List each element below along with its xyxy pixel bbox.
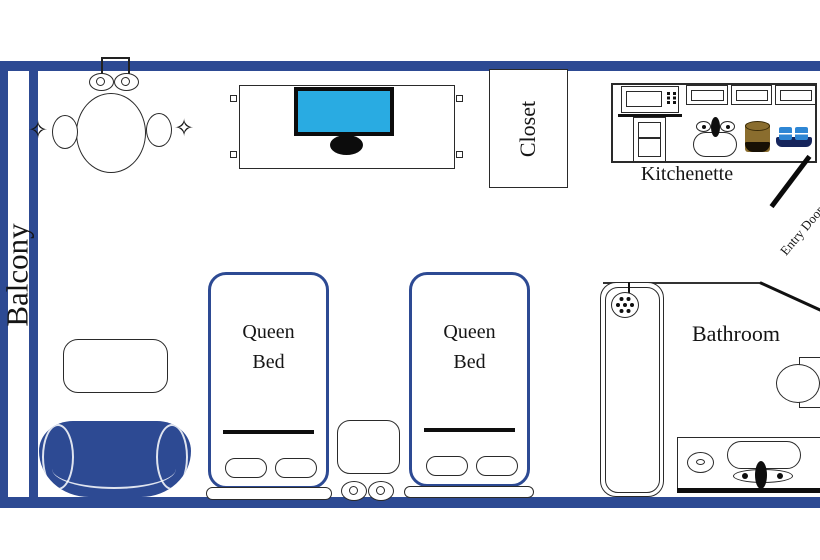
console-knob [456,95,463,102]
cabinet [775,85,816,105]
fridge-icon [633,117,666,162]
console-knob [230,151,237,158]
vanity-front-bar [677,488,820,493]
pillow [476,456,518,476]
cabinet [686,85,728,105]
tv-stand [330,135,363,155]
bed-2-label-line1: Queen [412,317,527,347]
microwave-icon [621,86,679,113]
bed-1-label-line1: Queen [211,317,326,347]
pendant-light-icon [89,73,114,91]
shower-head-icon [611,292,639,318]
dining-chair-left [52,115,78,149]
balcony-label-wrap: Balcony [0,252,93,298]
console-knob [456,151,463,158]
bed-1-label-line2: Bed [211,347,326,377]
console-knob [230,95,237,102]
soap-dish-icon [687,452,714,473]
pendant-connector [101,57,130,59]
bed-1: Queen Bed [208,272,329,489]
pillow [225,458,267,478]
wall-light-icon [341,481,367,501]
bed-2-label-line2: Bed [412,347,527,377]
toilet-bowl [776,364,820,403]
floor-plan: Balcony ✧ ✧ Closet [0,0,820,560]
vanity-handle [742,473,748,479]
bed-2: Queen Bed [409,272,530,487]
kitchen-faucet-icon [711,117,720,137]
bathroom-label: Bathroom [666,321,806,347]
wall-top [0,61,820,71]
closet-label: Closet [515,100,541,156]
sparkle-left-icon: ✧ [28,116,48,145]
kitchen-sink-wing [696,121,711,132]
kitchen-sink-wing [720,121,735,132]
wall-bottom [0,497,820,508]
vanity-spout [755,461,767,489]
mug-icon [779,127,792,140]
bed-fold-line [424,428,515,432]
nightstand [337,420,400,474]
kitchenette-label: Kitchenette [611,163,763,186]
pendant-light-icon [114,73,139,91]
sofa-seam [52,449,176,489]
vanity-handle [777,473,783,479]
tv-screen [294,87,394,136]
mug-icon [795,127,808,140]
bed-runner [206,487,332,500]
pillow [426,456,468,476]
bed-runner [404,486,534,498]
pillow [275,458,317,478]
bathroom-angled-wall [759,281,820,312]
dining-table [76,93,146,173]
balcony-label: Balcony [0,223,36,326]
microwave-buttons [667,92,670,95]
coffee-maker-icon [745,123,770,152]
bed-fold-line [223,430,314,434]
coffee-table [63,339,168,393]
closet: Closet [489,69,568,188]
cabinet [731,85,772,105]
sofa [39,421,191,497]
wall-light-icon [368,481,394,501]
sparkle-right-icon: ✧ [174,114,194,143]
dining-chair-right [146,113,172,147]
